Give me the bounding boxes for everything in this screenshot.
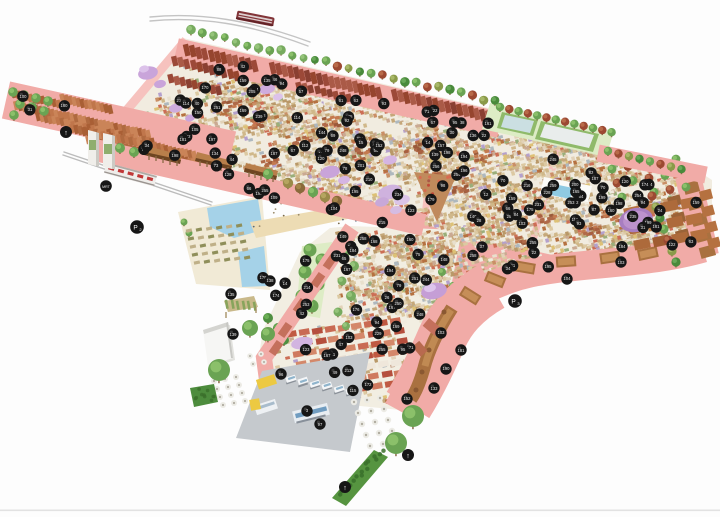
svg-text:152: 152 (376, 143, 384, 148)
svg-text:194: 194 (461, 154, 469, 159)
svg-text:159: 159 (693, 200, 701, 205)
svg-text:190: 190 (443, 366, 451, 371)
svg-text:139: 139 (230, 332, 238, 337)
svg-text:254: 254 (635, 193, 643, 198)
svg-text:97: 97 (318, 422, 323, 427)
svg-text:61: 61 (339, 98, 344, 103)
svg-text:31: 31 (641, 225, 646, 230)
svg-text:12: 12 (484, 192, 489, 197)
svg-text:195: 195 (352, 189, 360, 194)
svg-text:150: 150 (195, 110, 203, 115)
svg-text:98: 98 (441, 183, 446, 188)
svg-text:228: 228 (544, 190, 552, 195)
svg-text:187: 187 (271, 151, 279, 156)
svg-text:250: 250 (395, 301, 403, 306)
svg-text:198: 198 (616, 201, 624, 206)
svg-text:66: 66 (506, 206, 511, 211)
svg-text:103: 103 (346, 335, 354, 340)
svg-text:216: 216 (524, 183, 532, 188)
svg-text:255: 255 (530, 240, 538, 245)
svg-text:67: 67 (291, 148, 296, 153)
svg-text:231: 231 (334, 253, 342, 258)
svg-text:34: 34 (145, 143, 150, 148)
svg-text:P: P (511, 299, 515, 306)
svg-text:184: 184 (350, 248, 358, 253)
svg-text:258: 258 (360, 236, 368, 241)
svg-text:229: 229 (375, 331, 383, 336)
svg-text:30: 30 (450, 130, 455, 135)
svg-text:42: 42 (300, 311, 305, 316)
svg-text:251: 251 (214, 105, 222, 110)
svg-text:26: 26 (385, 295, 390, 300)
svg-text:133: 133 (431, 386, 439, 391)
svg-text:123: 123 (303, 347, 311, 352)
svg-text:148: 148 (441, 257, 449, 262)
svg-text:95: 95 (401, 347, 406, 352)
svg-text:234: 234 (395, 192, 403, 197)
svg-text:253: 253 (303, 302, 311, 307)
svg-text:215: 215 (379, 220, 387, 225)
svg-text:244: 244 (423, 277, 431, 282)
svg-text:22: 22 (482, 133, 487, 138)
svg-text:75: 75 (416, 252, 421, 257)
svg-text:149: 149 (340, 234, 348, 239)
svg-text:73: 73 (214, 163, 219, 168)
svg-text:93: 93 (577, 221, 582, 226)
svg-text:70: 70 (501, 178, 506, 183)
svg-text:167: 167 (344, 267, 352, 272)
svg-text:69: 69 (331, 133, 336, 138)
svg-text:144: 144 (319, 130, 327, 135)
svg-text:57: 57 (299, 89, 304, 94)
svg-text:194: 194 (387, 268, 395, 273)
svg-text:259: 259 (550, 183, 558, 188)
svg-text:138: 138 (267, 278, 275, 283)
svg-text:231: 231 (535, 202, 543, 207)
svg-text:↑: ↑ (343, 485, 347, 492)
svg-text:139: 139 (432, 152, 440, 157)
svg-text:114: 114 (294, 115, 301, 120)
svg-text:79: 79 (397, 283, 402, 288)
svg-text:94: 94 (280, 81, 285, 86)
svg-text:174: 174 (642, 182, 650, 187)
svg-text:37: 37 (480, 244, 485, 249)
svg-text:15: 15 (359, 140, 364, 145)
svg-text:88: 88 (217, 67, 222, 72)
svg-text:160: 160 (407, 237, 415, 242)
svg-text:128: 128 (225, 172, 233, 177)
svg-text:135: 135 (264, 78, 272, 83)
svg-text:103: 103 (618, 260, 626, 265)
svg-text:176: 176 (353, 307, 361, 312)
svg-text:205: 205 (249, 89, 257, 94)
svg-text:248: 248 (340, 148, 348, 153)
svg-text:159: 159 (509, 196, 517, 201)
svg-text:179: 179 (428, 197, 436, 202)
svg-text:255: 255 (262, 188, 270, 193)
svg-text:168: 168 (371, 239, 379, 244)
svg-text:70: 70 (601, 185, 606, 190)
svg-text:120: 120 (318, 156, 326, 161)
svg-text:14: 14 (283, 281, 288, 286)
svg-text:104: 104 (331, 206, 339, 211)
svg-text:112: 112 (302, 143, 309, 148)
svg-text:184: 184 (619, 244, 627, 249)
svg-text:248: 248 (417, 312, 425, 317)
svg-text:210: 210 (366, 177, 374, 182)
svg-text:253: 253 (568, 200, 576, 205)
svg-text:78: 78 (343, 166, 348, 171)
svg-text:103: 103 (519, 221, 527, 226)
svg-text:31: 31 (28, 107, 33, 112)
svg-text:197: 197 (209, 137, 217, 142)
svg-text:92: 92 (345, 118, 350, 123)
svg-text:105: 105 (192, 127, 200, 132)
svg-text:134: 134 (212, 151, 220, 156)
svg-text:159: 159 (240, 78, 248, 83)
svg-text:14: 14 (426, 140, 431, 145)
svg-text:172: 172 (365, 382, 373, 387)
svg-text:196: 196 (461, 168, 469, 173)
svg-text:96: 96 (279, 372, 284, 377)
svg-text:239: 239 (256, 114, 264, 119)
svg-text:123: 123 (408, 208, 416, 213)
svg-text:79: 79 (325, 148, 330, 153)
svg-text:↑: ↑ (64, 130, 68, 137)
svg-text:44: 44 (230, 157, 235, 162)
svg-text:135: 135 (228, 292, 236, 297)
svg-text:87: 87 (592, 207, 597, 212)
svg-text:169: 169 (240, 108, 248, 113)
svg-text:161: 161 (485, 121, 493, 126)
svg-text:235: 235 (630, 214, 638, 219)
svg-text:160: 160 (608, 208, 616, 213)
svg-text:47: 47 (339, 342, 344, 347)
svg-text:175: 175 (527, 207, 535, 212)
svg-text:109: 109 (271, 195, 279, 200)
svg-text:66: 66 (247, 186, 252, 191)
svg-text:170: 170 (202, 85, 210, 90)
svg-text:120: 120 (622, 179, 630, 184)
svg-text:22: 22 (532, 250, 537, 255)
svg-text:84: 84 (514, 212, 519, 217)
svg-text:P: P (133, 225, 137, 232)
svg-text:181: 181 (180, 137, 188, 142)
svg-text:174: 174 (273, 293, 281, 298)
svg-text:34: 34 (506, 266, 511, 271)
svg-text:180: 180 (61, 103, 69, 108)
svg-text:103: 103 (438, 330, 446, 335)
svg-text:181: 181 (458, 348, 466, 353)
svg-text:169: 169 (393, 324, 401, 329)
svg-text:49: 49 (333, 370, 338, 375)
svg-text:255: 255 (379, 347, 387, 352)
svg-text:136: 136 (470, 133, 478, 138)
svg-text:122: 122 (669, 242, 677, 247)
svg-text:201: 201 (358, 163, 366, 168)
svg-text:93: 93 (382, 101, 387, 106)
svg-text:63: 63 (354, 98, 359, 103)
svg-text:42: 42 (241, 64, 246, 69)
svg-text:24: 24 (658, 208, 663, 213)
svg-text:213: 213 (345, 368, 353, 373)
svg-text:175: 175 (303, 258, 311, 263)
svg-text:181: 181 (653, 224, 661, 229)
svg-text:MRT: MRT (102, 185, 111, 189)
svg-text:28: 28 (477, 218, 482, 223)
svg-text:187: 187 (592, 176, 600, 181)
svg-text:214: 214 (304, 285, 312, 290)
svg-text:198: 198 (444, 150, 452, 155)
svg-text:195: 195 (545, 264, 553, 269)
svg-text:157: 157 (438, 143, 446, 148)
svg-text:65: 65 (342, 256, 347, 261)
svg-text:198: 198 (172, 153, 180, 158)
svg-text:95: 95 (453, 120, 458, 125)
svg-text:258: 258 (470, 253, 478, 258)
svg-text:152: 152 (404, 396, 412, 401)
svg-text:71: 71 (425, 109, 430, 114)
svg-text:↑: ↑ (406, 453, 410, 460)
svg-text:67: 67 (431, 120, 436, 125)
svg-text:251: 251 (412, 276, 420, 281)
svg-text:167: 167 (324, 353, 332, 358)
svg-text:114: 114 (183, 101, 190, 106)
svg-text:256: 256 (433, 164, 441, 169)
svg-text:115: 115 (350, 388, 357, 393)
svg-text:94: 94 (375, 320, 380, 325)
svg-text:165: 165 (573, 189, 581, 194)
svg-text:100: 100 (20, 94, 28, 99)
svg-text:245: 245 (550, 157, 558, 162)
svg-text:63: 63 (689, 239, 694, 244)
svg-text:199: 199 (599, 195, 607, 200)
svg-text:94: 94 (641, 200, 646, 205)
svg-text:40: 40 (195, 101, 200, 106)
svg-text:104: 104 (564, 276, 572, 281)
